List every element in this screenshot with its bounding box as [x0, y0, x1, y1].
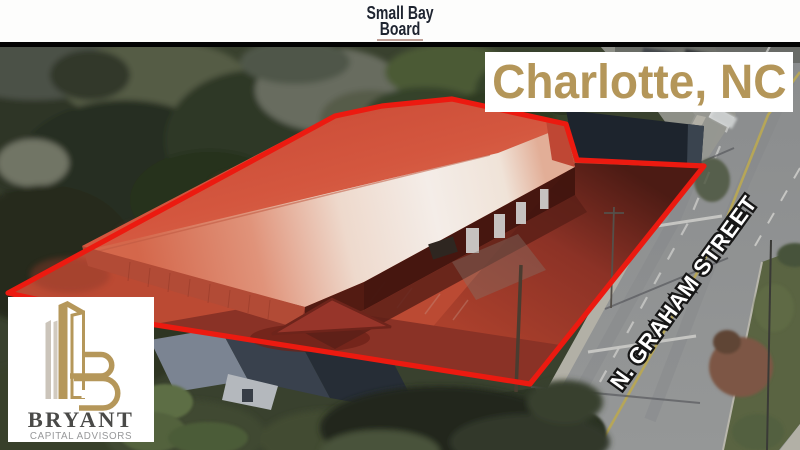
svg-text:CAPITAL ADVISORS: CAPITAL ADVISORS	[30, 431, 132, 442]
svg-text:BRYANT: BRYANT	[28, 407, 135, 432]
